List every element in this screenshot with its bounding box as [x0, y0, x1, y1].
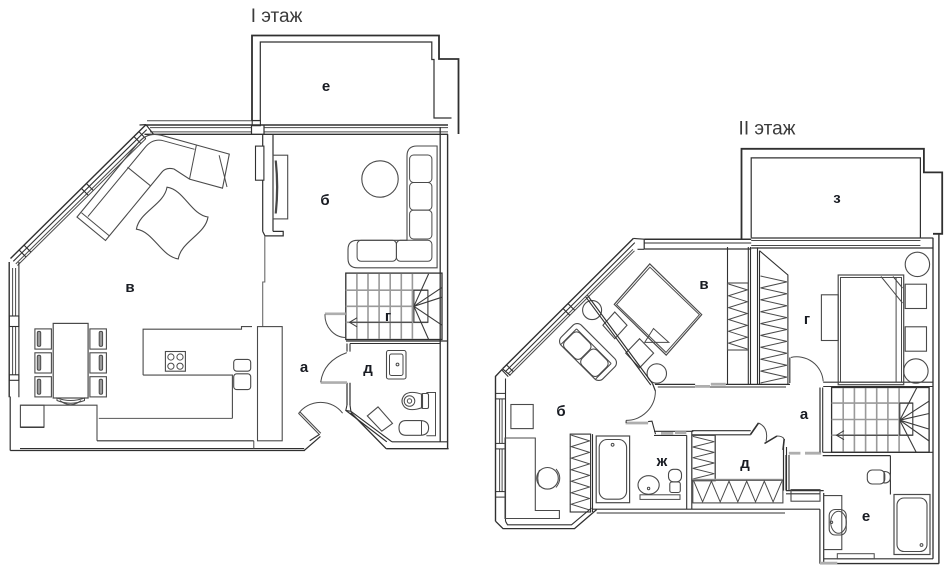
svg-text:а: а [800, 406, 809, 423]
svg-text:б: б [320, 192, 329, 209]
svg-text:б: б [556, 403, 565, 420]
svg-text:е: е [862, 508, 870, 525]
svg-text:в: в [699, 276, 708, 293]
svg-text:в: в [125, 279, 134, 296]
svg-text:д: д [363, 360, 373, 377]
svg-text:е: е [322, 78, 330, 95]
svg-text:г: г [385, 308, 391, 325]
svg-text:II этаж: II этаж [739, 119, 796, 140]
svg-text:д: д [740, 455, 750, 472]
svg-text:з: з [833, 190, 840, 207]
svg-text:I этаж: I этаж [251, 6, 303, 27]
svg-text:а: а [300, 359, 309, 376]
svg-text:ж: ж [656, 453, 668, 470]
svg-text:г: г [804, 311, 810, 328]
